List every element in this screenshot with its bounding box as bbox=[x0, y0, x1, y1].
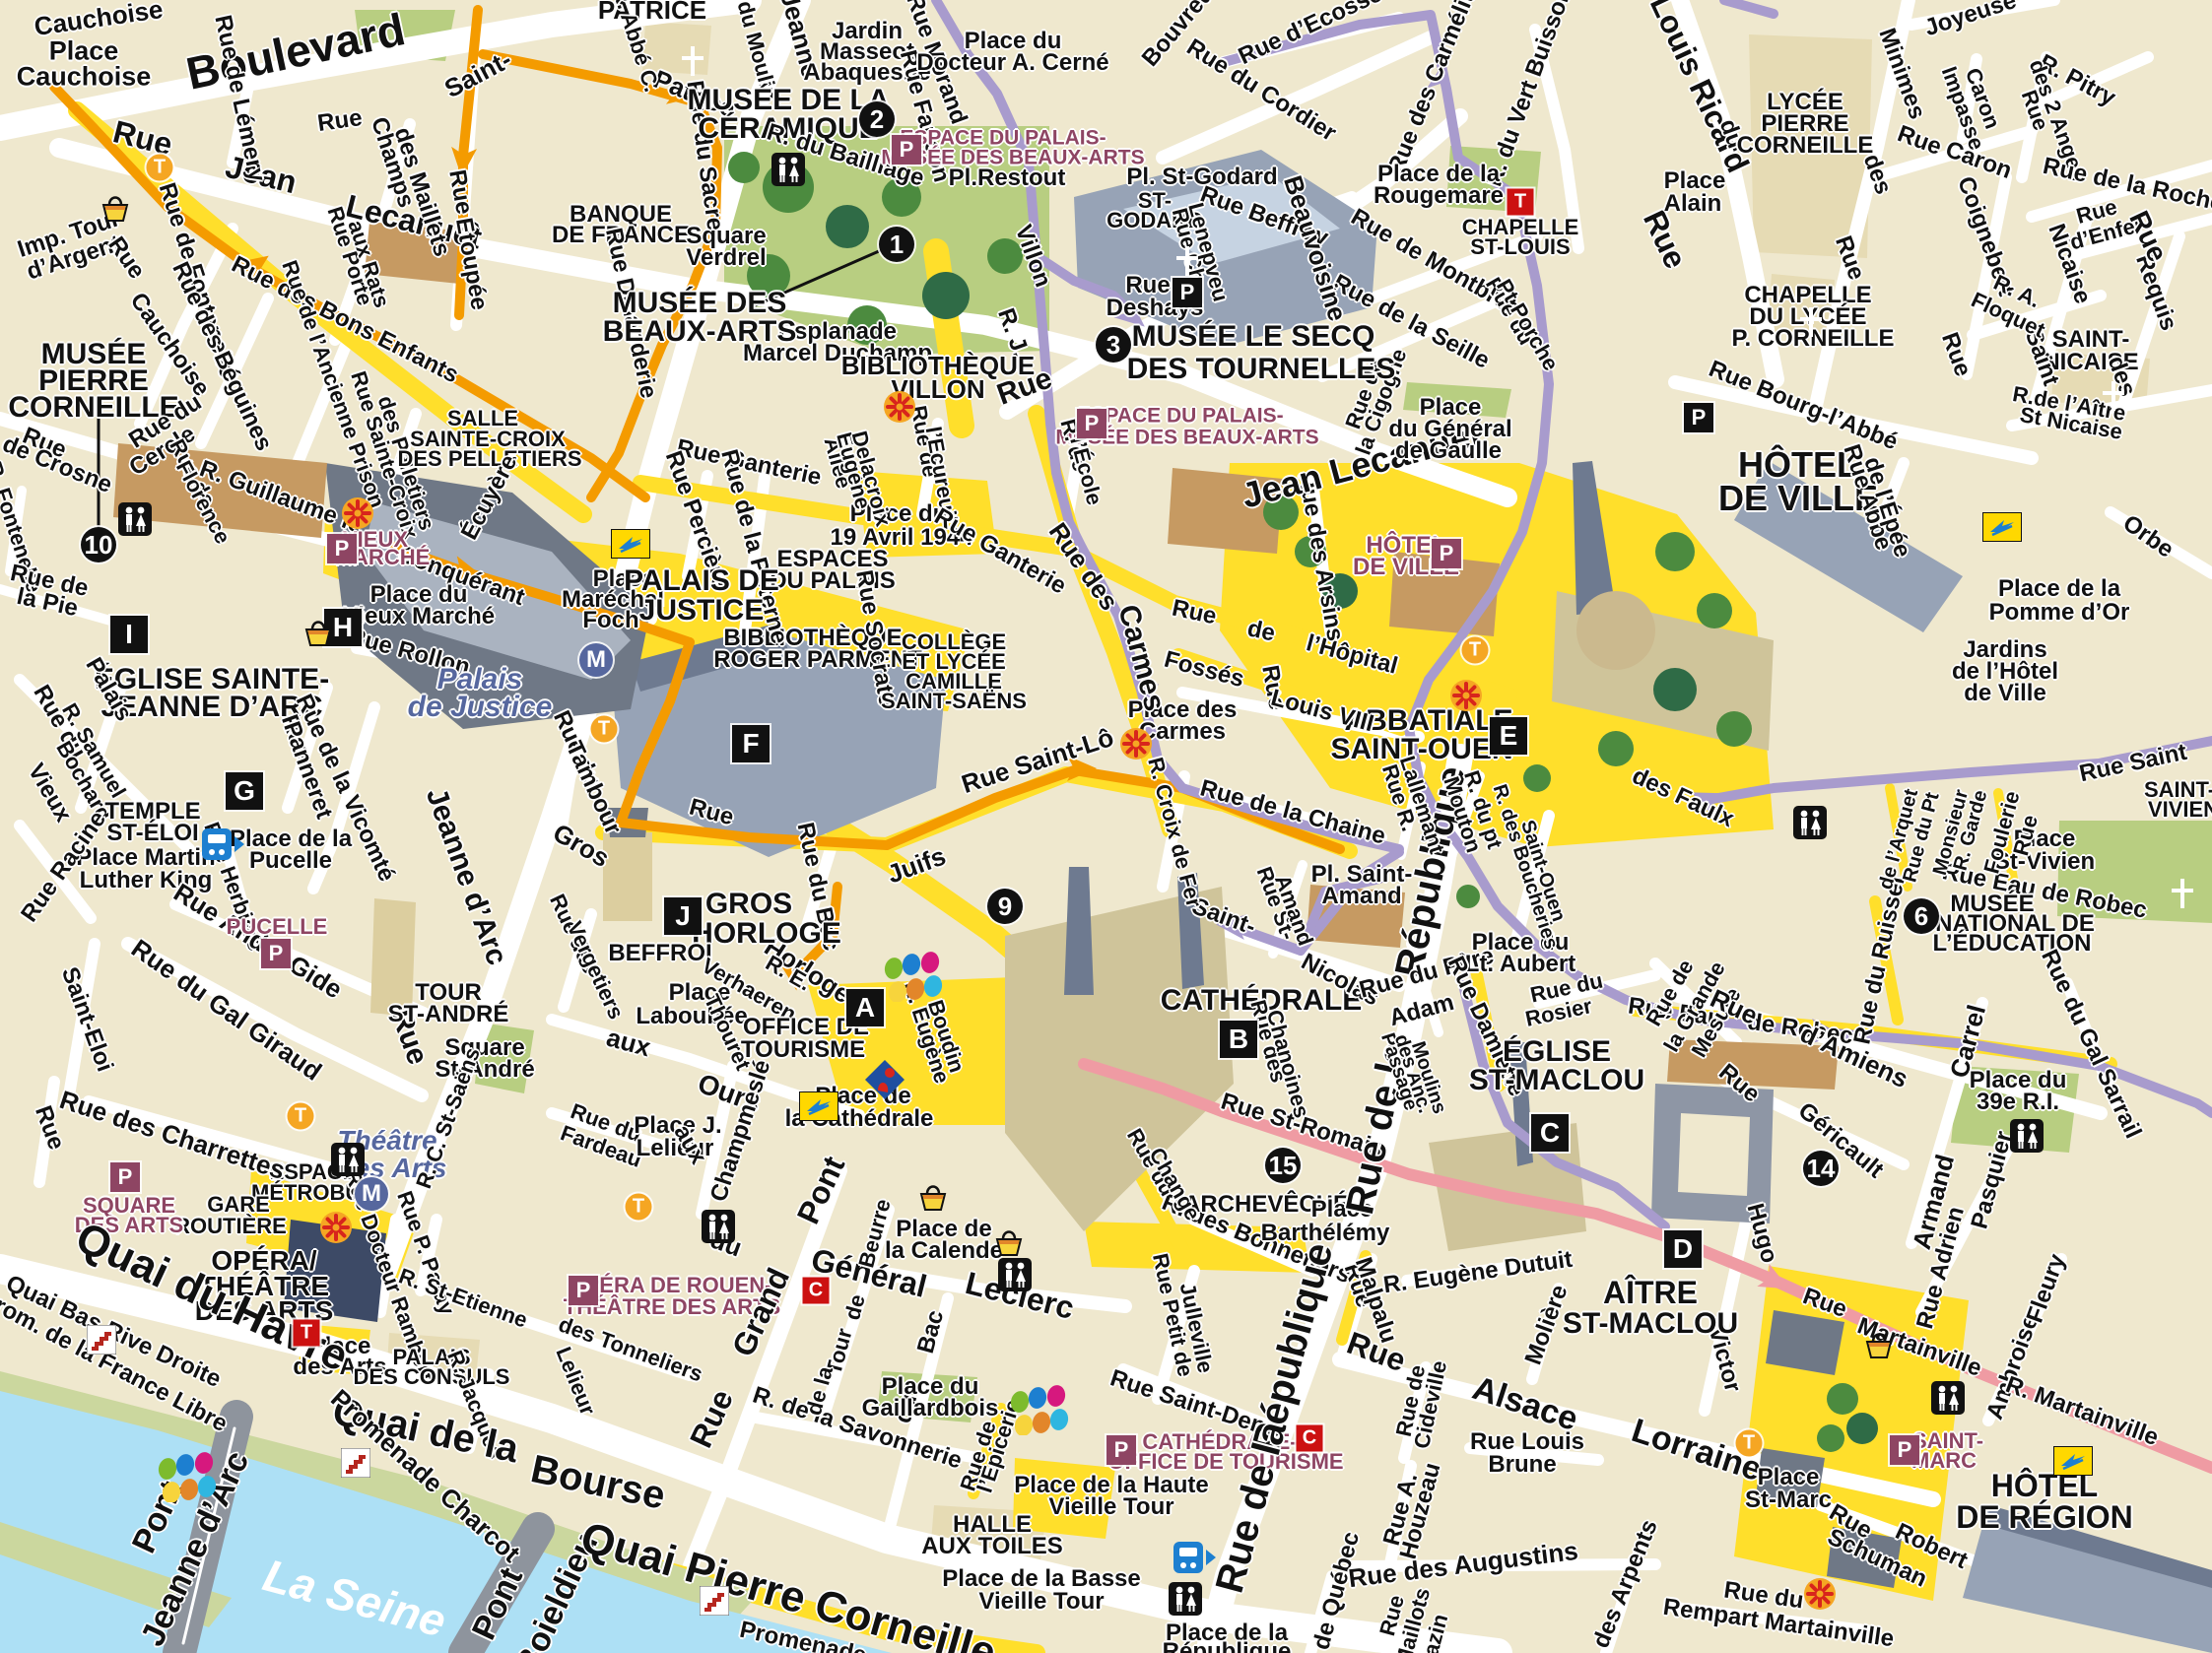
map-label: Pucelle bbox=[249, 849, 332, 873]
map-label: Cauchoise bbox=[17, 64, 152, 91]
map-area-181 bbox=[370, 898, 416, 1017]
map-label: DES CONSULS bbox=[354, 1366, 510, 1388]
poi-marker-letter-A: A bbox=[846, 989, 884, 1026]
map-label: MUSÉE DE LA bbox=[687, 86, 889, 115]
tree-202 bbox=[1827, 1383, 1858, 1415]
map-label: BEFFROI bbox=[608, 942, 711, 965]
map-label: St-Marc bbox=[1745, 1488, 1832, 1512]
parking-icon-P: P bbox=[1684, 403, 1713, 432]
map-label: ST-ANDRÉ bbox=[388, 1003, 509, 1026]
map-area-164 bbox=[1064, 867, 1094, 995]
map-label: Vieille Tour bbox=[1048, 1495, 1173, 1519]
map-label: Pomme d’Or bbox=[1989, 601, 2130, 625]
map-label: Amand bbox=[1321, 885, 1401, 908]
map-label: République bbox=[1163, 1640, 1292, 1653]
poi-marker-letter-C: C bbox=[1531, 1114, 1569, 1152]
walking-route-14 bbox=[1724, 0, 1774, 14]
map-label: DE RÉGION bbox=[1956, 1501, 2133, 1533]
map-label: ST-LOUIS bbox=[1470, 236, 1570, 258]
map-label: AUX TOILES bbox=[921, 1535, 1063, 1558]
map-label: Gaillardbois bbox=[862, 1397, 999, 1421]
map-label: JUSTICE bbox=[639, 596, 765, 626]
map-label: 39e R.I. bbox=[1977, 1091, 2059, 1114]
map-label: Brune bbox=[1488, 1453, 1556, 1477]
map-label: ÉGLISE bbox=[1503, 1037, 1611, 1067]
map-label: MUSÉE DES bbox=[613, 289, 787, 318]
tree-197 bbox=[1697, 593, 1732, 628]
map-label: St-Vivien bbox=[1994, 850, 2095, 874]
tree-206 bbox=[1456, 885, 1480, 908]
tree-189 bbox=[922, 272, 970, 319]
map-label: de bbox=[1245, 617, 1277, 645]
map-label: Pl.Restout bbox=[949, 166, 1066, 190]
map-label: BEAUX-ARTS bbox=[603, 317, 797, 347]
tree-204 bbox=[1817, 1424, 1844, 1452]
poi-marker-letter-D: D bbox=[1664, 1230, 1702, 1268]
map-label: ST-MACLOU bbox=[1469, 1066, 1644, 1095]
poi-marker-letter-E: E bbox=[1490, 717, 1527, 755]
poi-marker-number-14: 14 bbox=[1803, 1151, 1839, 1186]
map-label: Rue bbox=[316, 106, 364, 136]
map-label: Rue bbox=[444, 168, 476, 217]
map-label: Foch bbox=[582, 609, 638, 632]
tram-stop-icon-T: T bbox=[626, 1194, 652, 1221]
map-label: Barthélémy bbox=[1261, 1222, 1390, 1245]
map-label: de Gaulle bbox=[1395, 439, 1502, 463]
tram-stop-icon-T: T bbox=[591, 716, 618, 743]
zone-marker-C: C bbox=[803, 1278, 830, 1304]
map-label: ST-ÉLOI bbox=[106, 822, 198, 845]
tree-196 bbox=[1655, 532, 1695, 571]
parking-icon-P: P bbox=[892, 135, 921, 165]
tree-205 bbox=[1523, 764, 1551, 792]
tree-198 bbox=[1653, 668, 1697, 711]
map-label: CORNEILLE bbox=[1737, 134, 1874, 158]
poi-marker-number-9: 9 bbox=[987, 889, 1023, 924]
map-label: Lt. Aubert bbox=[1465, 953, 1575, 976]
parking-icon-P: P bbox=[1106, 1435, 1136, 1465]
poi-marker-number-2: 2 bbox=[859, 101, 895, 137]
map-label: ST-MACLOU bbox=[1563, 1309, 1738, 1339]
map-label: Place de la bbox=[1998, 577, 2120, 601]
parking-icon-P: P bbox=[1173, 278, 1202, 307]
poi-marker-letter-G: G bbox=[226, 772, 263, 810]
map-area-155 bbox=[1678, 1113, 1750, 1196]
map-label: Alain bbox=[1664, 192, 1722, 216]
parking-icon-P: P bbox=[261, 939, 291, 968]
map-label: ESPACE DU PALAIS- bbox=[900, 128, 1106, 149]
poi-marker-letter-B: B bbox=[1220, 1021, 1257, 1058]
map-label: Place bbox=[49, 38, 119, 65]
tram-stop-icon-T: T bbox=[288, 1103, 314, 1130]
map-label: OPÉRA DE ROUEN- bbox=[569, 1275, 772, 1296]
map-label: ROUTIÈRE bbox=[174, 1216, 287, 1237]
poi-marker-letter-I: I bbox=[110, 616, 148, 653]
map-label: Verdrel bbox=[686, 246, 766, 270]
tree-200 bbox=[1716, 711, 1752, 747]
map-label: TOURISME bbox=[741, 1038, 865, 1062]
map-label: SAINT-OUEN bbox=[1330, 735, 1512, 764]
map-label: MARC bbox=[1911, 1450, 1977, 1472]
map-label: SAINT-SAËNS bbox=[881, 691, 1027, 712]
parking-icon-P: P bbox=[1077, 409, 1106, 438]
map-label: ESPACE DU PALAIS- bbox=[1077, 406, 1283, 427]
tree-201 bbox=[1576, 591, 1655, 670]
map-label: AÎTRE bbox=[1603, 1277, 1698, 1308]
tram-stop-icon-T: T bbox=[294, 1320, 320, 1347]
map-label: Docteur A. Cerné bbox=[916, 51, 1108, 75]
map-label: GARE bbox=[207, 1194, 270, 1216]
map-label: VIVIEN bbox=[2148, 799, 2212, 821]
map-label: GROS bbox=[705, 890, 792, 919]
map-label: L’ÉDUCATION bbox=[1933, 932, 2092, 956]
tram-stop-icon-T: T bbox=[1736, 1430, 1763, 1457]
map-label: MUSÉE LE SECQ bbox=[1132, 322, 1375, 352]
zone-marker-C: C bbox=[1297, 1425, 1323, 1452]
rouen-city-map[interactable]: CauchoisePlaceCauchoiseBoulevardRueJeanL… bbox=[0, 0, 2212, 1653]
metro-icon-M: M bbox=[579, 643, 613, 677]
tree-192 bbox=[728, 152, 760, 183]
map-label: Pl. St-Godard bbox=[1126, 165, 1277, 189]
tree-203 bbox=[1846, 1413, 1878, 1444]
map-label: de Justice bbox=[408, 693, 553, 722]
map-label: de Ville bbox=[1964, 682, 2046, 705]
tram-stop-icon-T: T bbox=[1462, 637, 1489, 664]
tree-199 bbox=[1598, 731, 1634, 766]
poi-marker-letter-J: J bbox=[664, 897, 702, 935]
map-label: Vieux Marché bbox=[343, 605, 495, 628]
map-label: PUCELLE bbox=[227, 916, 328, 938]
map-label: Vieille Tour bbox=[978, 1590, 1104, 1614]
map-label: OFFICE DE TOURISME bbox=[1107, 1451, 1343, 1473]
parking-icon-P: P bbox=[110, 1162, 140, 1192]
map-label: la Calende bbox=[885, 1239, 1003, 1263]
poi-marker-number-6: 6 bbox=[1904, 898, 1939, 934]
metro-icon-M: M bbox=[355, 1177, 388, 1211]
parking-icon-P: P bbox=[1432, 539, 1461, 568]
poi-marker-number-15: 15 bbox=[1265, 1148, 1301, 1183]
tram-stop-icon-T: T bbox=[147, 155, 173, 181]
map-label: Rougemare bbox=[1374, 184, 1504, 208]
map-label: PALAIS DE bbox=[624, 566, 779, 596]
map-label: DES TOURNELLES bbox=[1127, 355, 1396, 384]
poi-marker-letter-F: F bbox=[732, 725, 770, 762]
tree-186 bbox=[826, 205, 869, 248]
parking-icon-P: P bbox=[1890, 1435, 1919, 1465]
parking-icon-P: P bbox=[569, 1276, 598, 1305]
poi-marker-number-10: 10 bbox=[81, 527, 116, 562]
poi-marker-number-1: 1 bbox=[879, 227, 914, 262]
parking-icon-P: P bbox=[327, 534, 357, 563]
map-label: HORLOGE bbox=[692, 919, 841, 949]
tram-stop-icon-T: T bbox=[1508, 189, 1534, 216]
poi-marker-number-3: 3 bbox=[1096, 327, 1131, 363]
